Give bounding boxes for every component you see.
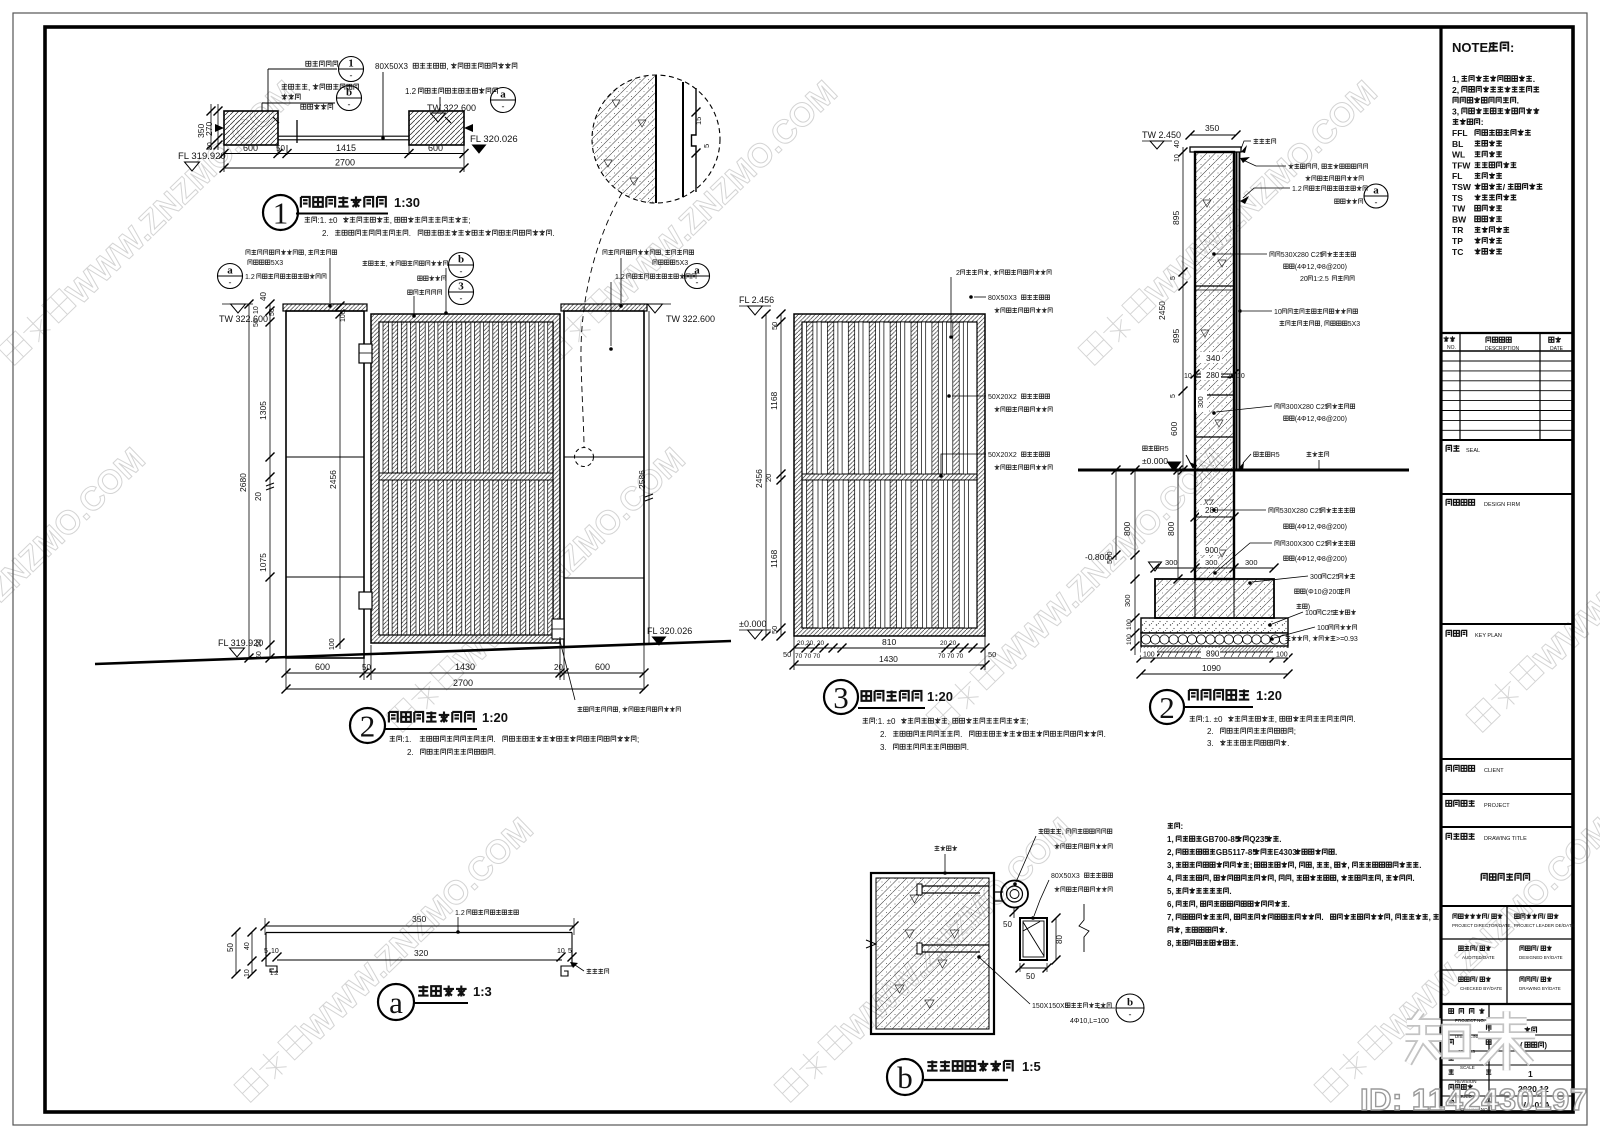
svg-text:10: 10 — [271, 948, 279, 955]
svg-text:ID: 1142430197: ID: 1142430197 — [1360, 1082, 1588, 1117]
svg-text:50: 50 — [1026, 972, 1035, 981]
svg-text:TC: TC — [1452, 247, 1463, 257]
svg-text:20: 20 — [554, 663, 563, 672]
svg-text:6,: 6, — [1167, 900, 1174, 909]
svg-text:NOTE/: NOTE/ — [1452, 40, 1492, 55]
svg-text:.: . — [1517, 96, 1519, 106]
svg-text::: : — [1510, 40, 1514, 55]
svg-text:,: , — [1292, 874, 1294, 883]
svg-text:(4Φ12,Φ8@200): (4Φ12,Φ8@200) — [1295, 524, 1347, 531]
svg-text:1.2: 1.2 — [245, 274, 255, 281]
svg-text:1: 1 — [1528, 1069, 1533, 1079]
svg-text:50: 50 — [770, 626, 779, 634]
svg-text:10: 10 — [1274, 309, 1282, 316]
svg-text:300: 300 — [1165, 558, 1178, 567]
svg-text:2: 2 — [360, 709, 376, 744]
svg-text:,: , — [989, 270, 991, 277]
svg-text:DATE: DATE — [1550, 346, 1564, 352]
svg-text:350: 350 — [1205, 123, 1219, 133]
svg-text:R5: R5 — [1160, 446, 1169, 453]
svg-text:1: 1 — [348, 58, 354, 70]
svg-text:3.: 3. — [880, 743, 887, 752]
svg-text:1430: 1430 — [879, 654, 898, 664]
svg-text:.: . — [1287, 739, 1289, 748]
svg-text::: : — [1181, 822, 1184, 831]
svg-text:3,: 3, — [1452, 106, 1459, 116]
svg-text:340: 340 — [1206, 353, 1220, 363]
svg-text:-: - — [696, 278, 699, 288]
svg-text:.: . — [494, 748, 496, 757]
svg-text:.: . — [1229, 887, 1231, 896]
svg-text:-: - — [348, 100, 351, 110]
svg-text:(4Φ12,Φ8@200): (4Φ12,Φ8@200) — [1295, 264, 1347, 271]
svg-text:,: , — [948, 717, 950, 726]
svg-text:50X20X2: 50X20X2 — [988, 394, 1017, 401]
svg-text:5: 5 — [1170, 394, 1177, 398]
svg-text:TS: TS — [1452, 193, 1463, 203]
svg-text:10: 10 — [244, 969, 251, 977]
svg-text:DESCRIPTION: DESCRIPTION — [1485, 346, 1520, 352]
svg-text:2.: 2. — [880, 730, 887, 739]
svg-text:100: 100 — [1305, 610, 1317, 617]
svg-text:810: 810 — [882, 637, 896, 647]
svg-text:R5: R5 — [1271, 452, 1280, 459]
svg-text:50: 50 — [253, 319, 260, 327]
svg-text:80X50X3: 80X50X3 — [988, 295, 1017, 302]
svg-text:280: 280 — [1205, 506, 1219, 515]
svg-text:;: ; — [1026, 717, 1028, 726]
svg-text:600: 600 — [315, 662, 330, 672]
svg-text:1:5: 1:5 — [1022, 1059, 1041, 1074]
svg-text:10: 10 — [253, 306, 260, 314]
svg-text:2680: 2680 — [238, 473, 248, 492]
svg-text:3.: 3. — [1207, 739, 1214, 748]
svg-text:1.2: 1.2 — [1292, 186, 1302, 193]
svg-text:5X3: 5X3 — [271, 260, 284, 267]
svg-text:1: 1 — [273, 196, 289, 231]
svg-text::: : — [1481, 117, 1484, 127]
svg-text:a: a — [694, 265, 700, 277]
svg-text:60: 60 — [256, 651, 263, 659]
svg-text:895: 895 — [1171, 211, 1181, 225]
svg-text:;: ; — [468, 216, 470, 225]
svg-text:b: b — [897, 1060, 913, 1095]
svg-text:KEY PLAN: KEY PLAN — [1475, 633, 1502, 639]
svg-text:900: 900 — [1205, 546, 1219, 555]
svg-text:1:30: 1:30 — [394, 195, 420, 210]
svg-text:PROJECT LEADER DE/DATE: PROJECT LEADER DE/DATE — [1514, 923, 1575, 928]
svg-text:TW 322.600: TW 322.600 — [666, 314, 715, 324]
svg-text:3: 3 — [458, 281, 464, 293]
svg-text:,: , — [308, 83, 310, 92]
svg-text:,: , — [661, 250, 663, 257]
svg-text:100: 100 — [340, 310, 347, 322]
svg-text:1305: 1305 — [258, 401, 268, 420]
svg-text:-0.800: -0.800 — [1085, 552, 1109, 562]
svg-text:.: . — [1279, 835, 1281, 844]
svg-text:300X280 C25: 300X280 C25 — [1286, 404, 1329, 411]
svg-text:.: . — [1419, 861, 1421, 870]
svg-text:1090: 1090 — [1202, 663, 1221, 673]
svg-text:300X300 C25: 300X300 C25 — [1286, 541, 1329, 548]
svg-text:2.: 2. — [1207, 727, 1214, 736]
svg-text:-: - — [1375, 198, 1378, 208]
svg-text:.: . — [1533, 74, 1535, 84]
svg-text:,: , — [446, 62, 448, 71]
svg-text:.: . — [1321, 913, 1323, 922]
svg-text:.: . — [1335, 848, 1337, 857]
svg-text:5: 5 — [1170, 276, 1177, 280]
svg-text:.: . — [1236, 939, 1238, 948]
svg-text:2: 2 — [1159, 690, 1175, 725]
svg-text:530X280 C25: 530X280 C25 — [1280, 508, 1323, 515]
svg-text:-: - — [1129, 1010, 1132, 1020]
svg-text::1. ±0: :1. ±0 — [1203, 715, 1224, 724]
svg-text:C25: C25 — [1327, 574, 1340, 581]
svg-text:SEAL: SEAL — [1466, 448, 1480, 454]
svg-text:50: 50 — [276, 144, 285, 153]
svg-text:890: 890 — [1206, 650, 1220, 659]
svg-text:2.: 2. — [407, 748, 414, 757]
svg-text:7,: 7, — [1167, 913, 1174, 922]
svg-text:/: / — [1537, 977, 1539, 984]
svg-text:,: , — [1209, 874, 1211, 883]
svg-text:.: . — [552, 229, 554, 238]
svg-text:50: 50 — [256, 639, 263, 647]
svg-text:PROJECT: PROJECT — [1484, 803, 1510, 809]
svg-text:,: , — [1181, 926, 1183, 935]
svg-text:,: , — [618, 707, 620, 714]
svg-text:2: 2 — [956, 270, 960, 277]
svg-text:50X20X2: 50X20X2 — [988, 452, 1017, 459]
svg-text:1.2: 1.2 — [615, 274, 625, 281]
svg-text:,: , — [386, 261, 388, 268]
svg-text:,: , — [390, 216, 392, 225]
svg-text:(4Φ12,Φ8@200): (4Φ12,Φ8@200) — [1295, 556, 1347, 563]
svg-text:.: . — [409, 229, 411, 238]
svg-text:50: 50 — [783, 650, 791, 659]
svg-text:50: 50 — [988, 650, 996, 659]
svg-text:1:20: 1:20 — [482, 710, 508, 725]
svg-text:895: 895 — [1171, 329, 1181, 343]
svg-text:350: 350 — [412, 914, 426, 924]
svg-text:(4Φ12,Φ8@200): (4Φ12,Φ8@200) — [1295, 416, 1347, 423]
svg-text:5,: 5, — [1167, 887, 1174, 896]
svg-text:100: 100 — [1143, 652, 1155, 659]
svg-text:E4303: E4303 — [1274, 848, 1298, 857]
svg-text:1168: 1168 — [769, 391, 779, 410]
svg-text:5: 5 — [568, 948, 572, 955]
svg-text:(Φ10@200,: (Φ10@200, — [1306, 589, 1342, 596]
svg-text:TW: TW — [1452, 204, 1466, 214]
svg-text:.: . — [967, 743, 969, 752]
svg-text:,: , — [1274, 874, 1276, 883]
svg-text:SCALE: SCALE — [1460, 1065, 1475, 1070]
svg-text:-: - — [460, 267, 463, 277]
svg-text::1. ±0: :1. ±0 — [318, 216, 339, 225]
svg-text:,: , — [1337, 874, 1339, 883]
svg-text:TW 2.450: TW 2.450 — [1142, 130, 1181, 140]
svg-text:FL 2.456: FL 2.456 — [739, 295, 774, 305]
svg-text:CLIENT: CLIENT — [1484, 768, 1504, 774]
svg-text:300: 300 — [1245, 558, 1258, 567]
svg-text:50: 50 — [362, 663, 371, 672]
svg-text:/: / — [1476, 946, 1478, 953]
svg-text:,: , — [1330, 861, 1332, 870]
svg-text:300: 300 — [1310, 574, 1322, 581]
svg-text:20 20: 20 20 — [940, 640, 957, 647]
svg-text:AUDITED/DATE: AUDITED/DATE — [1462, 955, 1495, 960]
svg-text:3,: 3, — [1167, 861, 1174, 870]
svg-text:): ) — [1544, 1041, 1547, 1050]
svg-text:1075: 1075 — [258, 553, 268, 572]
svg-text:80: 80 — [207, 142, 214, 150]
svg-text:80X50X3: 80X50X3 — [375, 62, 408, 71]
svg-text:20: 20 — [1227, 373, 1235, 380]
svg-text:a: a — [500, 89, 506, 101]
svg-text:.: . — [1225, 926, 1227, 935]
svg-text:1.2: 1.2 — [405, 87, 417, 96]
svg-text:50: 50 — [1003, 920, 1012, 929]
svg-text:,: , — [1229, 913, 1231, 922]
svg-text:FL 319.920: FL 319.920 — [178, 151, 226, 162]
svg-text:5: 5 — [264, 948, 268, 955]
svg-text:C25: C25 — [1322, 610, 1335, 617]
svg-text:1415: 1415 — [336, 143, 356, 153]
svg-text:100: 100 — [329, 638, 336, 650]
svg-text:.: . — [494, 735, 496, 744]
svg-text:BL: BL — [1452, 139, 1463, 149]
svg-text:b: b — [1127, 997, 1133, 1009]
svg-text:2,: 2, — [1452, 85, 1459, 95]
svg-text:DRAWING TITLE: DRAWING TITLE — [1484, 836, 1527, 842]
svg-text:600: 600 — [428, 143, 443, 153]
svg-text:,: , — [1196, 900, 1198, 909]
svg-text:/: / — [1537, 946, 1539, 953]
svg-text:2450: 2450 — [1157, 301, 1167, 320]
svg-text:/: / — [1488, 914, 1490, 921]
svg-text:PROJECT DIRECTOR/DATE: PROJECT DIRECTOR/DATE — [1452, 923, 1511, 928]
svg-text:TW 322.600: TW 322.600 — [219, 314, 268, 324]
svg-text:BW: BW — [1452, 214, 1467, 224]
svg-text:2456: 2456 — [328, 470, 338, 489]
svg-text:40: 40 — [259, 292, 268, 301]
svg-text:10: 10 — [1184, 373, 1192, 380]
svg-text:40: 40 — [244, 942, 251, 950]
svg-text:,: , — [1391, 913, 1393, 922]
svg-text:1,: 1, — [1452, 74, 1459, 84]
svg-text:8,: 8, — [1167, 939, 1174, 948]
svg-text:b: b — [346, 87, 352, 99]
svg-text:DRAWING BY/DATE: DRAWING BY/DATE — [1519, 986, 1561, 991]
svg-text:.: . — [1353, 715, 1355, 724]
svg-text:a: a — [227, 265, 233, 277]
svg-text:1:20: 1:20 — [927, 689, 953, 704]
svg-text:100: 100 — [1276, 652, 1288, 659]
svg-text:20,20, 20: 20,20, 20 — [797, 640, 824, 647]
svg-text:530X280 C25: 530X280 C25 — [1281, 252, 1324, 259]
svg-text:WL: WL — [1452, 150, 1465, 160]
svg-text:800: 800 — [1166, 522, 1176, 536]
svg-text:,: , — [1312, 861, 1314, 870]
svg-text:-: - — [229, 278, 232, 288]
svg-text:;: ; — [1294, 727, 1296, 736]
svg-text:280: 280 — [1206, 371, 1220, 380]
svg-text:270: 270 — [204, 122, 214, 136]
svg-text:,: , — [1318, 164, 1320, 171]
svg-text:;: ; — [1250, 861, 1253, 870]
svg-text:70 70 70: 70 70 70 — [938, 653, 964, 660]
svg-text:TR: TR — [1452, 225, 1463, 235]
svg-text:GB700-85: GB700-85 — [1202, 835, 1239, 844]
svg-text:CHECKED BY/DATE: CHECKED BY/DATE — [1460, 986, 1502, 991]
svg-text:/: / — [1544, 914, 1546, 921]
svg-text:-: - — [460, 294, 463, 304]
svg-text:3: 3 — [833, 680, 849, 715]
svg-text:150X150X5: 150X150X5 — [1032, 1003, 1069, 1010]
svg-text:>=0.93: >=0.93 — [1336, 636, 1358, 643]
svg-text:300: 300 — [1123, 594, 1132, 607]
svg-text:,: , — [1275, 715, 1277, 724]
svg-text:GB5117-85: GB5117-85 — [1216, 848, 1257, 857]
svg-text:TP: TP — [1452, 236, 1463, 246]
svg-text:600: 600 — [1169, 422, 1179, 436]
svg-text:2456: 2456 — [754, 469, 764, 488]
svg-text:2586: 2586 — [637, 470, 647, 489]
svg-text:,: , — [1347, 861, 1349, 870]
svg-text:20: 20 — [254, 492, 263, 501]
svg-text:1430: 1430 — [455, 662, 475, 672]
svg-text:2,: 2, — [1167, 848, 1174, 857]
svg-text:10: 10 — [1237, 373, 1245, 380]
svg-text::1. ±0: :1. ±0 — [876, 717, 897, 726]
svg-text:;: ; — [637, 735, 639, 744]
svg-text:300: 300 — [1205, 558, 1218, 567]
svg-text:DESIGN FIRM: DESIGN FIRM — [1484, 502, 1520, 508]
svg-text:a: a — [389, 985, 403, 1020]
svg-text:FL: FL — [1452, 171, 1462, 181]
svg-text:100: 100 — [1126, 634, 1133, 645]
svg-text:20: 20 — [1300, 276, 1308, 283]
svg-text:4,: 4, — [1167, 874, 1174, 883]
svg-text::1.: :1. — [403, 735, 412, 744]
svg-text:80X50X3: 80X50X3 — [1051, 873, 1080, 880]
svg-text:600: 600 — [243, 143, 258, 153]
svg-text:800: 800 — [1122, 522, 1132, 536]
svg-text:50: 50 — [226, 943, 235, 952]
svg-text:,: , — [1309, 636, 1311, 643]
svg-text:80: 80 — [1055, 935, 1064, 944]
svg-text:±0.000: ±0.000 — [739, 619, 766, 629]
svg-text:300: 300 — [1198, 396, 1205, 408]
svg-text:±0.000: ±0.000 — [1142, 456, 1168, 466]
svg-text:,: , — [1062, 829, 1064, 836]
svg-text:1168: 1168 — [769, 549, 779, 568]
svg-text:Q235: Q235 — [1249, 835, 1269, 844]
svg-text:,: , — [304, 250, 306, 257]
svg-text:10: 10 — [1174, 154, 1181, 162]
svg-text:4Φ10,L=100: 4Φ10,L=100 — [1070, 1018, 1109, 1025]
svg-text:20: 20 — [764, 474, 773, 482]
svg-text:TFW: TFW — [1452, 160, 1471, 170]
svg-text:2700: 2700 — [335, 158, 355, 168]
svg-text:5X3: 5X3 — [1348, 321, 1361, 328]
svg-text:NO.: NO. — [1447, 345, 1456, 351]
svg-text:TW 322.600: TW 322.600 — [427, 103, 476, 113]
svg-text:,: , — [1320, 321, 1322, 328]
svg-text:1.2: 1.2 — [270, 971, 279, 977]
svg-text:600: 600 — [595, 662, 610, 672]
svg-text:.: . — [1288, 900, 1290, 909]
svg-text:1:2.5: 1:2.5 — [1313, 276, 1329, 283]
svg-text:.: . — [1104, 730, 1106, 739]
svg-text:1,: 1, — [1167, 835, 1174, 844]
svg-text:FL 320.026: FL 320.026 — [470, 134, 518, 145]
svg-text:50: 50 — [770, 322, 779, 330]
svg-text:15: 15 — [694, 117, 703, 125]
svg-text:FFL: FFL — [1452, 128, 1468, 138]
svg-text:TSW: TSW — [1452, 182, 1472, 192]
svg-text:,: , — [1381, 874, 1383, 883]
svg-text:2.: 2. — [322, 229, 329, 238]
svg-text:70 70 70: 70 70 70 — [795, 653, 821, 660]
svg-text:,: , — [1294, 861, 1296, 870]
svg-text:5: 5 — [702, 144, 711, 148]
svg-text:b: b — [458, 254, 464, 266]
svg-text:,: , — [1429, 913, 1431, 922]
svg-text:100: 100 — [1126, 619, 1133, 630]
svg-text:100: 100 — [1317, 625, 1329, 632]
svg-text:FL 320.026: FL 320.026 — [647, 626, 692, 636]
svg-text:/: / — [1476, 977, 1478, 984]
svg-text:1:3: 1:3 — [473, 984, 492, 999]
svg-text:-: - — [350, 71, 353, 81]
svg-text:320: 320 — [414, 948, 428, 958]
svg-text:-: - — [502, 102, 505, 112]
svg-text:1.2: 1.2 — [455, 910, 465, 917]
svg-text:40: 40 — [1174, 140, 1181, 148]
svg-text:1:20: 1:20 — [1256, 688, 1282, 703]
svg-text:.: . — [1412, 874, 1414, 883]
svg-text:2700: 2700 — [453, 678, 473, 688]
svg-text:5X3: 5X3 — [676, 260, 689, 267]
svg-text:.: . — [960, 730, 962, 739]
svg-text:DESIGNED BY/DATE: DESIGNED BY/DATE — [1519, 955, 1563, 960]
svg-text:50: 50 — [269, 308, 276, 316]
svg-text:a: a — [1373, 185, 1379, 197]
